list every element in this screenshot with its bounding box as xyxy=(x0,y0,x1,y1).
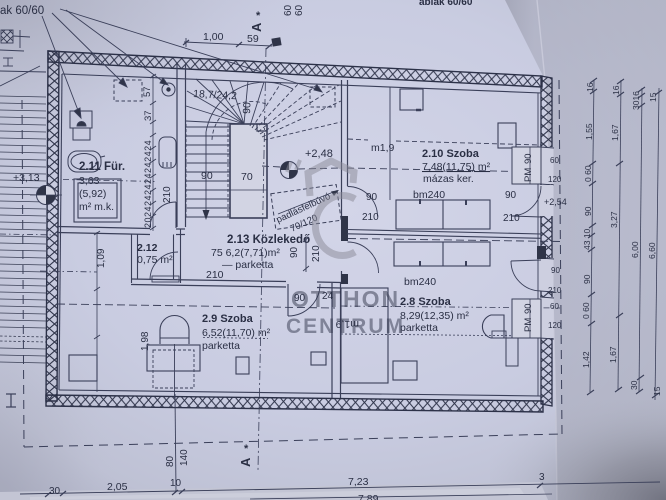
svg-text:3: 3 xyxy=(539,472,545,483)
svg-text:6,60: 6,60 xyxy=(647,242,657,259)
svg-text:90: 90 xyxy=(289,246,300,258)
svg-text:2.9 Szoba: 2.9 Szoba xyxy=(202,313,254,325)
svg-text:90: 90 xyxy=(201,170,213,182)
svg-text:90: 90 xyxy=(523,153,534,164)
svg-text:210: 210 xyxy=(162,186,173,203)
svg-text:parketta: parketta xyxy=(202,340,240,352)
svg-text:parketta: parketta xyxy=(400,322,438,334)
svg-text:*: * xyxy=(244,443,249,455)
svg-text:210: 210 xyxy=(503,213,520,224)
svg-text:1,67: 1,67 xyxy=(608,346,618,363)
svg-text:15: 15 xyxy=(652,386,662,396)
svg-text:CENTRUM: CENTRUM xyxy=(286,315,405,338)
svg-text:1,42: 1,42 xyxy=(581,351,591,368)
svg-text:140: 140 xyxy=(179,449,190,466)
svg-text:8,29(12,35) m²: 8,29(12,35) m² xyxy=(400,310,469,322)
svg-text:1,98: 1,98 xyxy=(140,331,151,351)
svg-text:90: 90 xyxy=(523,303,534,314)
svg-text:70: 70 xyxy=(241,171,253,183)
svg-text:90: 90 xyxy=(241,102,253,114)
svg-text:59: 59 xyxy=(247,33,259,45)
svg-text:2024242424242424: 2024242424242424 xyxy=(143,140,153,228)
svg-text:18,7/24,2: 18,7/24,2 xyxy=(193,88,238,102)
svg-text:2.12: 2.12 xyxy=(137,242,158,254)
svg-text:15: 15 xyxy=(648,92,658,102)
svg-text:1,09: 1,09 xyxy=(96,248,107,268)
svg-text:+2,54: +2,54 xyxy=(544,197,567,207)
svg-text:m² m.k.: m² m.k. xyxy=(79,201,114,213)
svg-text:A: A xyxy=(249,22,264,32)
svg-text:mázas ker.: mázas ker. xyxy=(423,173,474,185)
svg-text:90: 90 xyxy=(366,192,378,203)
svg-text:2.11 Für.: 2.11 Für. xyxy=(79,161,125,173)
svg-text:bm240: bm240 xyxy=(413,189,445,201)
svg-text:210: 210 xyxy=(206,269,224,281)
svg-text:90: 90 xyxy=(583,206,593,216)
svg-text:7,48(11,75) m²: 7,48(11,75) m² xyxy=(422,161,491,173)
svg-text:2.13 Közlekedő: 2.13 Közlekedő xyxy=(227,234,310,246)
svg-text:120: 120 xyxy=(548,321,562,330)
svg-text:6,52(11,70) m²: 6,52(11,70) m² xyxy=(202,327,271,339)
svg-text:3,27: 3,27 xyxy=(609,211,619,228)
svg-text:210: 210 xyxy=(362,212,379,223)
svg-text:1,67: 1,67 xyxy=(610,124,620,141)
svg-text:16: 16 xyxy=(611,85,621,95)
svg-text:90: 90 xyxy=(551,266,560,275)
svg-text:ak 60/60: ak 60/60 xyxy=(0,5,44,17)
svg-text:bm240: bm240 xyxy=(404,276,436,288)
svg-text:ablak 60/60: ablak 60/60 xyxy=(419,0,473,8)
svg-text:60: 60 xyxy=(550,302,559,311)
svg-text:3,63: 3,63 xyxy=(79,175,100,187)
svg-text:2.8 Szoba: 2.8 Szoba xyxy=(400,296,452,308)
svg-text:(5,92): (5,92) xyxy=(79,188,106,200)
svg-text:2.10 Szoba: 2.10 Szoba xyxy=(422,148,480,160)
svg-text:30: 30 xyxy=(49,486,61,497)
svg-text:75 6,2(7,71)m²: 75 6,2(7,71)m² xyxy=(211,247,280,259)
svg-text:1,55: 1,55 xyxy=(584,123,594,140)
svg-text:90: 90 xyxy=(505,190,517,201)
svg-text:PM: PM xyxy=(523,318,534,332)
svg-text:60: 60 xyxy=(294,4,305,16)
svg-text:+2,48: +2,48 xyxy=(305,148,333,160)
svg-text:90: 90 xyxy=(582,274,592,284)
svg-text:7,23: 7,23 xyxy=(348,476,369,488)
svg-text:80: 80 xyxy=(165,455,176,467)
svg-text:— parketta: — parketta xyxy=(222,259,274,271)
svg-text:7,89: 7,89 xyxy=(358,493,379,500)
svg-text:30: 30 xyxy=(629,380,639,390)
svg-text:OTTHON: OTTHON xyxy=(291,286,400,312)
svg-text:210: 210 xyxy=(548,286,562,295)
svg-text:1,00: 1,00 xyxy=(203,31,224,43)
svg-text:60: 60 xyxy=(283,4,294,16)
svg-text:2,05: 2,05 xyxy=(107,481,128,493)
svg-text:57: 57 xyxy=(142,86,153,97)
svg-text:PM: PM xyxy=(523,168,534,182)
svg-text:m1,9: m1,9 xyxy=(371,142,395,154)
svg-text:3016: 3016 xyxy=(631,91,641,110)
svg-text:60: 60 xyxy=(550,156,559,165)
svg-text:A: A xyxy=(238,457,253,467)
svg-text:37: 37 xyxy=(143,110,154,121)
svg-text:+3,13: +3,13 xyxy=(13,172,40,184)
svg-text:0 60: 0 60 xyxy=(583,165,593,182)
svg-text:6,00: 6,00 xyxy=(630,241,640,258)
svg-text:0 60: 0 60 xyxy=(581,302,591,319)
svg-text:16: 16 xyxy=(585,82,595,92)
svg-text:43 10: 43 10 xyxy=(582,228,592,250)
svg-text:*: * xyxy=(256,10,261,22)
